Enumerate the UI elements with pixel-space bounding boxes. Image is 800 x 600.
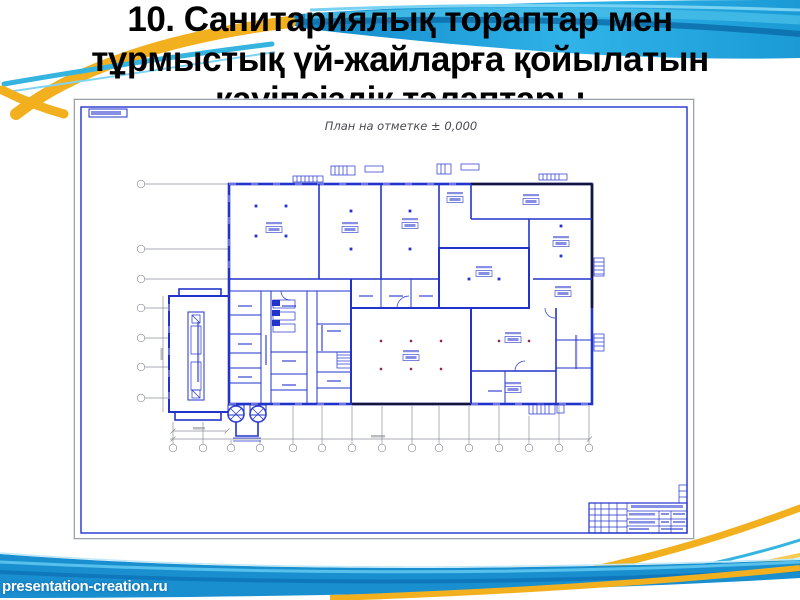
roof-vents xyxy=(293,164,567,182)
sheet-corner-stamp xyxy=(89,109,127,117)
floor-plan-sheet: План на отметке ± 0,000 xyxy=(74,99,694,539)
slide-title-line-2: тұрмыстық үй-жайларға қойылатын xyxy=(0,40,800,80)
interior-walls xyxy=(229,184,592,404)
dimension-lines xyxy=(161,296,593,442)
floor-plan-svg: План на отметке ± 0,000 xyxy=(75,100,693,538)
slide-title-line-1: 10. Санитариялық тораптар мен xyxy=(0,0,800,40)
column-marks xyxy=(255,205,563,371)
axis-grid-left xyxy=(137,180,229,402)
watermark-link[interactable]: presentation-creation.ru xyxy=(2,578,167,595)
sheet-frame xyxy=(81,107,687,533)
title-block xyxy=(589,485,687,533)
entrance-towers xyxy=(228,405,266,441)
presentation-slide: 10. Санитариялық тораптар мен тұрмыстық … xyxy=(0,0,800,600)
plan-caption: План на отметке ± 0,000 xyxy=(325,119,478,133)
